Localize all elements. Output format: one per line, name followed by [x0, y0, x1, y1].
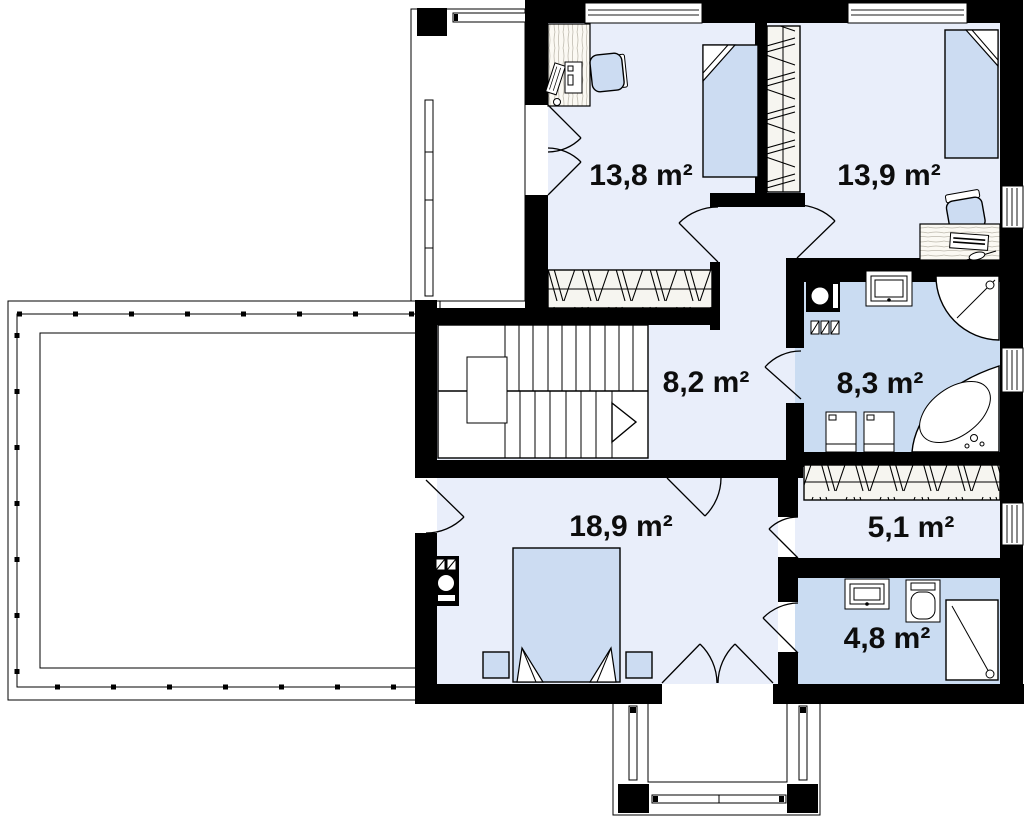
washer-icon — [864, 412, 894, 452]
floor-plan-drawing: 13,8 m² 13,9 m² 8,2 m² 8,3 m² 18,9 m² 5,… — [0, 0, 1024, 818]
bed-icon — [945, 30, 998, 158]
porch — [613, 702, 820, 815]
bed-icon — [513, 548, 620, 682]
column — [618, 784, 649, 813]
room-area-label: 4,8 m² — [844, 622, 931, 655]
shower-icon — [946, 600, 998, 680]
toilet-icon — [906, 580, 940, 622]
window-icon — [848, 3, 967, 23]
wardrobe-icon — [548, 270, 712, 308]
keyboard-icon — [950, 233, 989, 251]
bed-icon — [703, 45, 758, 177]
chimney-icon — [433, 556, 459, 606]
room-area-label: 18,9 m² — [569, 510, 672, 543]
column — [417, 8, 447, 36]
room-area-label: 8,2 m² — [663, 366, 750, 399]
window-icon — [1002, 186, 1023, 228]
nightstand-icon — [626, 652, 652, 678]
mouse-icon — [554, 99, 561, 106]
balcony — [411, 8, 533, 301]
window-icon — [1002, 348, 1023, 392]
window-icon — [1002, 503, 1023, 545]
porch-door-opening — [662, 684, 773, 704]
floor-plan: 13,8 m² 13,9 m² 8,2 m² 8,3 m² 18,9 m² 5,… — [0, 0, 1024, 818]
room-area-label: 5,1 m² — [868, 511, 955, 544]
chair-icon — [589, 52, 628, 92]
stairs-icon — [438, 325, 648, 458]
nightstand-icon — [483, 652, 509, 678]
wardrobe-icon — [767, 26, 800, 192]
room-area-label: 8,3 m² — [837, 367, 924, 400]
wardrobe-icon — [804, 465, 1000, 500]
room-area-label: 13,8 m² — [589, 159, 692, 192]
terrace — [8, 301, 440, 700]
sink-icon — [845, 579, 889, 609]
column — [787, 784, 818, 813]
room-area-label: 13,9 m² — [837, 159, 940, 192]
toilet-icon — [806, 280, 840, 312]
window-icon — [585, 3, 702, 23]
sink-icon — [866, 271, 912, 306]
radiator-icon — [811, 321, 839, 334]
desk-icon — [546, 24, 590, 106]
washer-icon — [826, 412, 856, 452]
desk-icon — [920, 224, 1000, 262]
